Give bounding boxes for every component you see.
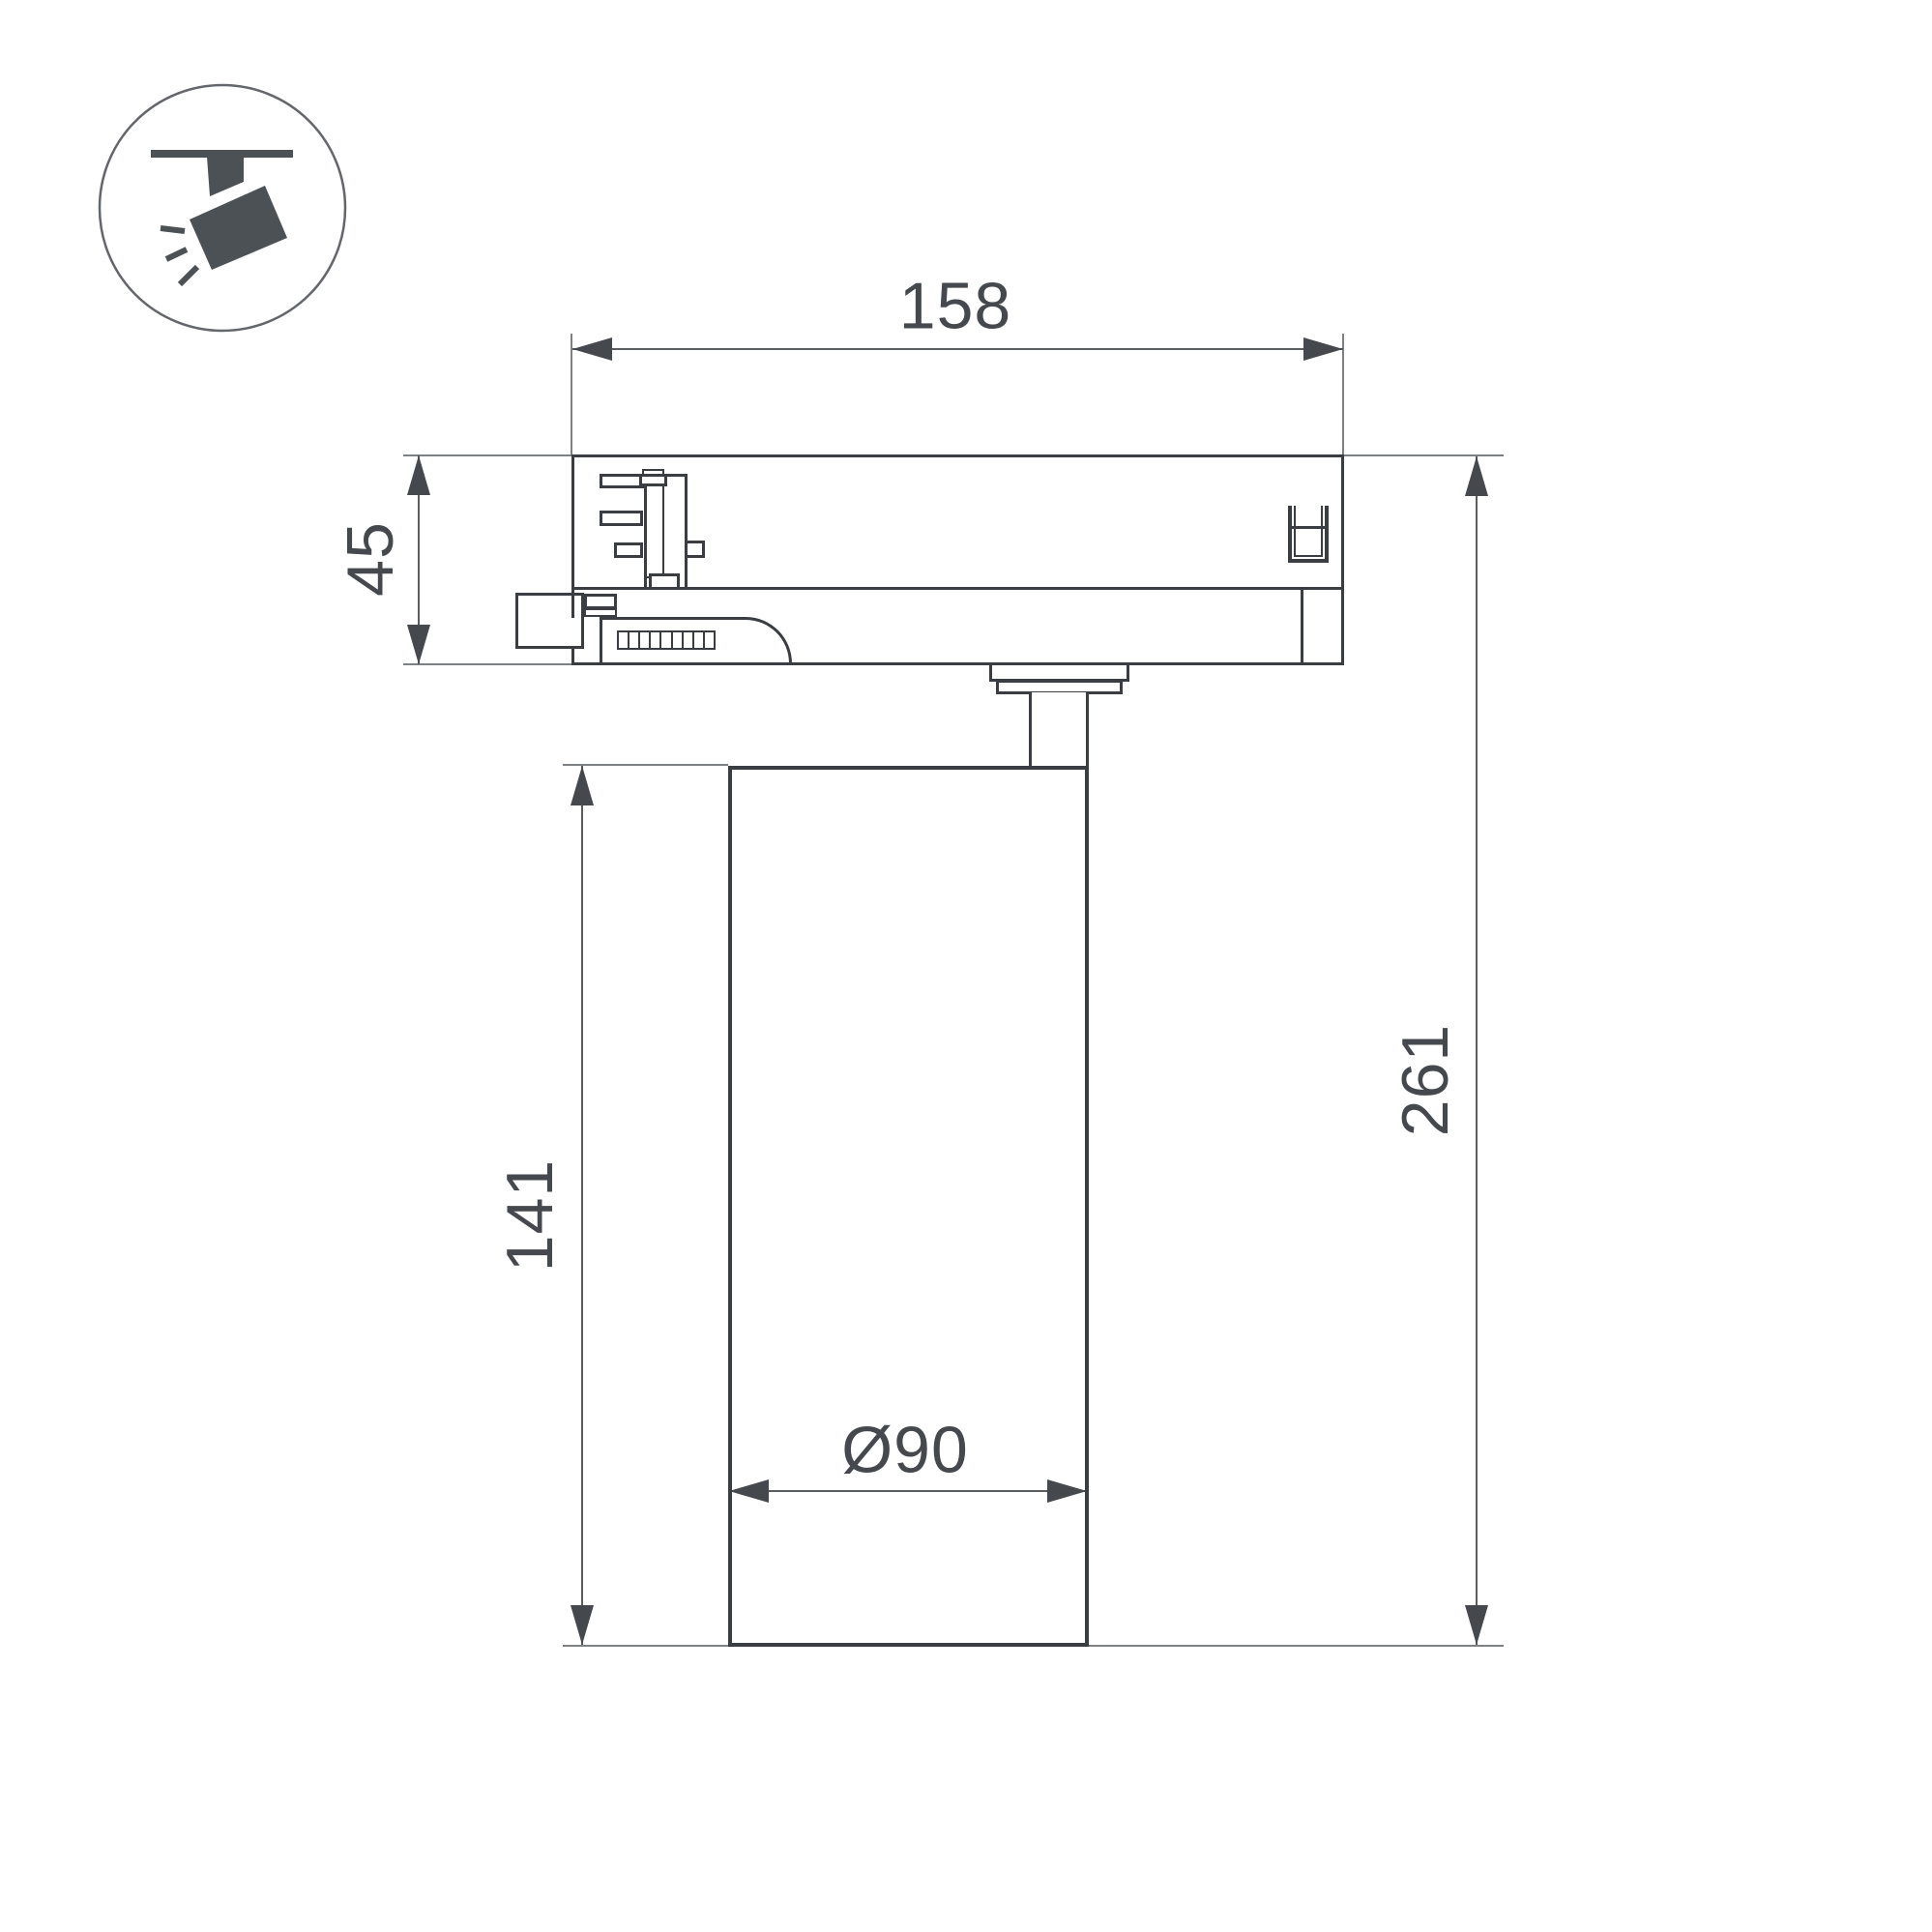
dim-label-track-width: 158 [899,268,1011,343]
dim-line-261 [1476,456,1478,1645]
pivot-flange-upper [989,662,1129,682]
adapter-slider-comb [617,630,716,650]
housing-u-clip-inner [1294,506,1323,557]
pivot-stem [1029,692,1089,768]
comb-cell [640,632,651,648]
dim-158-arrow-right [1303,337,1343,361]
adapter-clip-edge-line [571,593,574,618]
comb-cell [661,632,672,648]
contact-tab-right [685,541,705,558]
contact-cap-strip [642,469,664,476]
comb-cell [619,632,629,648]
dim-158-arrow-left [572,337,612,361]
dim-line-141 [581,766,583,1645]
dim-label-adapter-height: 45 [333,521,408,597]
adapter-latch-lower [584,608,617,617]
dim-label-body-height: 141 [492,1159,568,1272]
icon-ceiling-track-bar [151,150,293,158]
housing-u-clip-bar [1292,526,1325,529]
dim-261-arrow-down [1465,1605,1488,1645]
adapter-arm-end-divider [1301,590,1303,662]
comb-cell [651,632,661,648]
adapter-latch-upper [584,594,617,609]
dim-141-arrow-down [571,1605,594,1645]
contact-prong-bottom [614,542,643,558]
comb-cell [684,632,694,648]
dim-label-total-height: 261 [1388,1024,1463,1136]
comb-cell [705,632,714,648]
dim-261-arrow-up [1465,456,1488,496]
drawing-canvas: 158 45 141 261 Ø90 [0,0,1932,1932]
track-spotlight-icon [97,82,350,336]
dim-45-arrow-down [407,625,430,664]
comb-cell [629,632,640,648]
contact-prong-middle [600,511,643,526]
comb-cell [673,632,684,648]
contact-foot [649,573,680,590]
lamp-body-cylinder [728,766,1089,1647]
ext-line-bottom-right [1088,1645,1504,1647]
comb-cell [694,632,705,648]
dim-141-arrow-up [571,766,594,805]
dim-45-arrow-up [407,455,430,495]
dim-line-158 [572,348,1343,350]
contact-slot [645,484,664,578]
ext-line-bottom-left [563,1645,728,1647]
